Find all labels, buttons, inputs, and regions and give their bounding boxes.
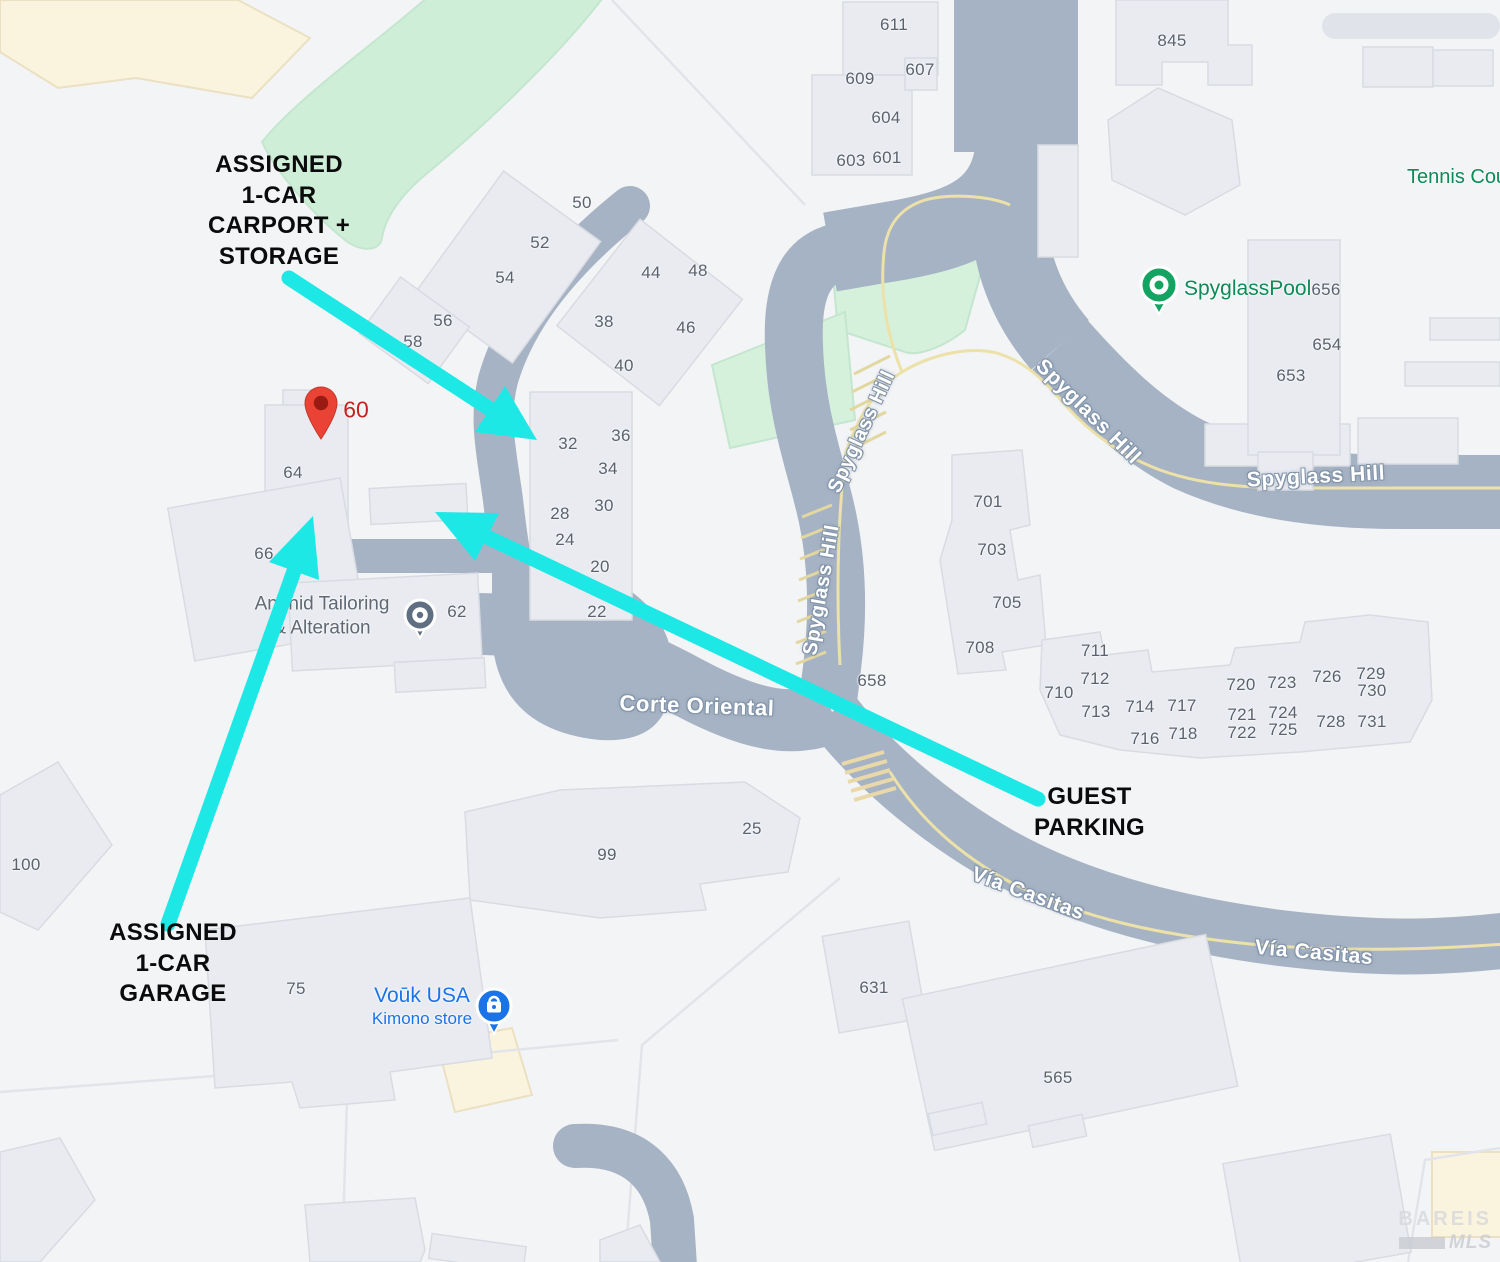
guest-arrow-line (487, 537, 1038, 799)
carport-arrow-line (289, 278, 490, 409)
map-canvas[interactable]: 6116096076046036018455052545658444838464… (0, 0, 1500, 1262)
annotation-carport: ASSIGNED 1-CAR CARPORT + STORAGE (150, 150, 408, 273)
annotation-garage: ASSIGNED 1-CAR GARAGE (62, 918, 284, 1010)
garage-arrow-line (168, 571, 294, 924)
annotation-guest-parking: GUEST PARKING (982, 782, 1197, 843)
garage-arrow-head (269, 516, 319, 580)
